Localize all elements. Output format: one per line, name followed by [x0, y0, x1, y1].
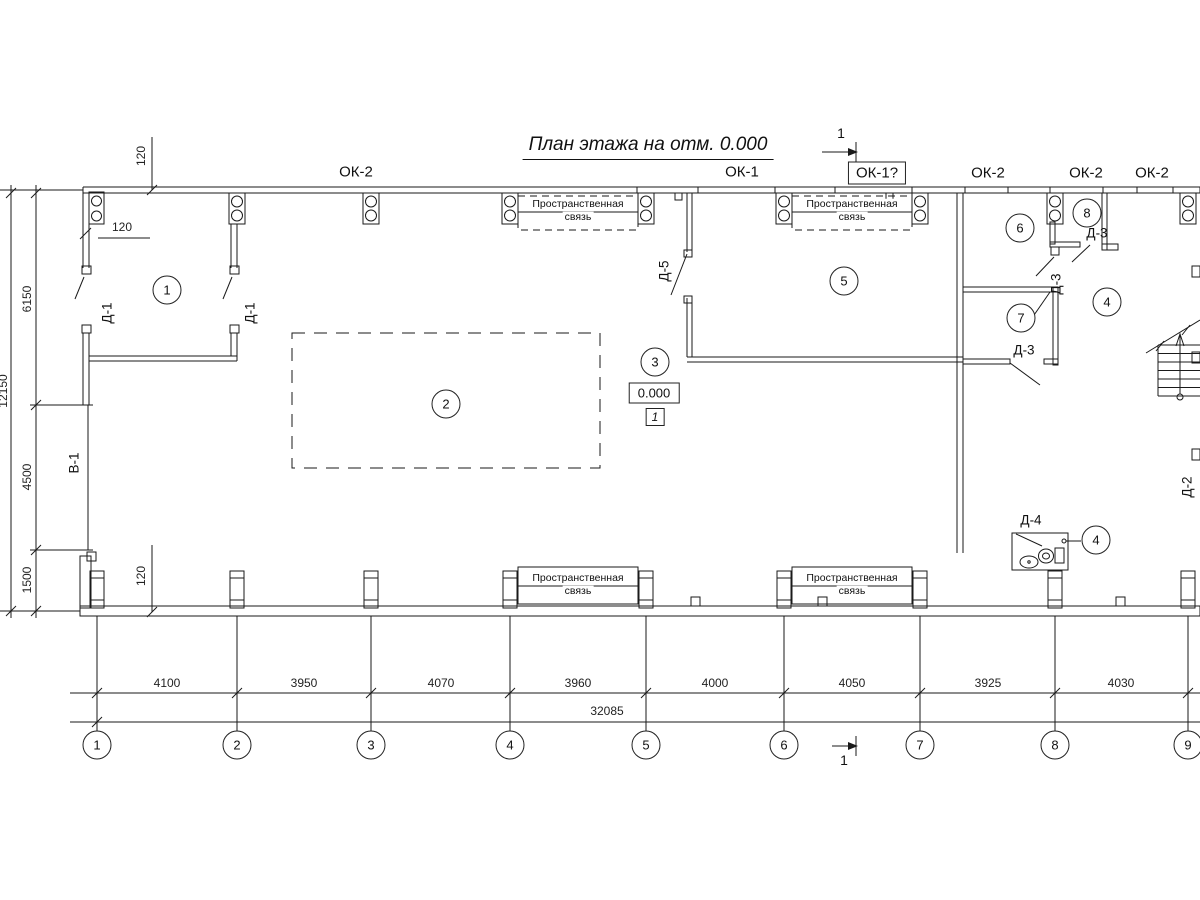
grid-bubble-7: 7 — [906, 731, 935, 760]
window-mark-label: ОК-2 — [1135, 166, 1169, 181]
section-number: 1 — [837, 126, 845, 140]
door-mark-label: Д-1 — [100, 302, 114, 323]
door-mark-label: Д-5 — [657, 260, 671, 281]
brace-label-line2: связь — [563, 212, 594, 223]
drawing-title: План этажа на отм. 0.000 — [523, 134, 774, 160]
dimension-label: 4050 — [839, 677, 866, 689]
window-mark-label: ОК-2 — [1069, 166, 1103, 181]
door-mark-label: Д-4 — [1020, 513, 1041, 527]
room-tag-1: 1 — [153, 276, 182, 305]
dimension-label: 4500 — [21, 464, 33, 491]
grid-bubble-8: 8 — [1041, 731, 1070, 760]
room-tag-3: 3 — [641, 348, 670, 377]
grid-bubble-1: 1 — [83, 731, 112, 760]
grid-bubble-2: 2 — [223, 731, 252, 760]
dimension-label: 3960 — [565, 677, 592, 689]
dimension-label: 120 — [135, 566, 147, 586]
door-mark-label: Д-3 — [1086, 226, 1107, 240]
dimension-label: 120 — [135, 146, 147, 166]
node-mark: 1 — [646, 408, 665, 426]
brace-label-line1: Пространственная — [804, 199, 899, 210]
grid-bubble-9: 9 — [1174, 731, 1200, 760]
door-mark-label: Д-2 — [1180, 476, 1194, 497]
door-mark-label: Д-1 — [243, 302, 257, 323]
brace-label-line1: Пространственная — [530, 573, 625, 584]
dimension-label: 6150 — [21, 286, 33, 313]
dimension-label: 4070 — [428, 677, 455, 689]
dimension-label: 4030 — [1108, 677, 1135, 689]
brace-label-line2: связь — [837, 212, 868, 223]
dimension-label: 12150 — [0, 374, 9, 407]
grid-bubble-3: 3 — [357, 731, 386, 760]
room-tag-7: 7 — [1007, 304, 1036, 333]
dimension-label: 3925 — [975, 677, 1002, 689]
dimension-label: 32085 — [590, 705, 623, 717]
dimension-label: 120 — [112, 221, 132, 233]
door-mark-label: В-1 — [67, 452, 81, 473]
brace-label-line1: Пространственная — [804, 573, 899, 584]
labels-layer: План этажа на отм. 0.000 ОК-1? 0.000 1 О… — [0, 0, 1200, 900]
room-tag-4: 4 — [1093, 288, 1122, 317]
section-number: 1 — [840, 753, 848, 767]
dimension-label: 4100 — [154, 677, 181, 689]
room-tag-4: 4 — [1082, 526, 1111, 555]
elevation-mark: 0.000 — [629, 383, 680, 404]
door-mark-label: Д-3 — [1013, 343, 1034, 357]
window-mark-label: ОК-2 — [339, 165, 373, 180]
grid-bubble-5: 5 — [632, 731, 661, 760]
brace-label-line1: Пространственная — [530, 199, 625, 210]
dimension-label: 1500 — [21, 567, 33, 594]
brace-label-line2: связь — [837, 586, 868, 597]
dimension-label: 4000 — [702, 677, 729, 689]
grid-bubble-6: 6 — [770, 731, 799, 760]
window-mark-label: ОК-2 — [971, 166, 1005, 181]
room-tag-8: 8 — [1073, 199, 1102, 228]
room-tag-6: 6 — [1006, 214, 1035, 243]
grid-bubble-4: 4 — [496, 731, 525, 760]
window-mark-boxed-label: ОК-1? — [848, 162, 906, 185]
window-mark-label: ОК-1 — [725, 165, 759, 180]
door-mark-label: Д-3 — [1049, 273, 1063, 294]
dimension-label: 3950 — [291, 677, 318, 689]
brace-label-line2: связь — [563, 586, 594, 597]
room-tag-5: 5 — [830, 267, 859, 296]
floor-plan-drawing: План этажа на отм. 0.000 ОК-1? 0.000 1 О… — [0, 0, 1200, 900]
room-tag-2: 2 — [432, 390, 461, 419]
